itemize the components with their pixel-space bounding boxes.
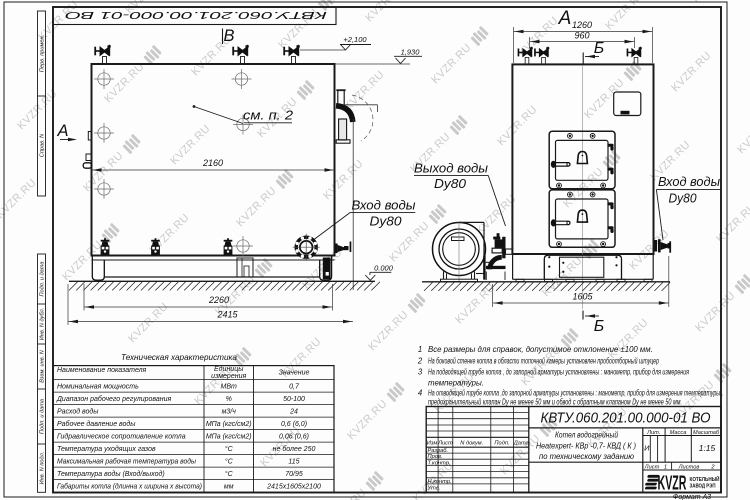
svg-text:Рабочее давление воды: Рабочее давление воды	[57, 420, 136, 428]
svg-text:измерения: измерения	[211, 373, 246, 380]
svg-text:КВТУ.060.201.00.000-01 ВО: КВТУ.060.201.00.000-01 ВО	[65, 9, 327, 21]
svg-text:МПа (кгс/см2): МПа (кгс/см2)	[206, 421, 252, 428]
svg-text:70/95: 70/95	[285, 471, 303, 478]
svg-text:2: 2	[417, 356, 423, 365]
svg-text:2415х1605х2100: 2415х1605х2100	[266, 484, 321, 491]
svg-text:м3/ч: м3/ч	[222, 409, 237, 416]
svg-text:Котел водогрейный: Котел водогрейный	[555, 430, 618, 440]
svg-text:Диапазон рабочего регулировани: Диапазон рабочего регулирования	[56, 395, 172, 403]
svg-text:Вход воды: Вход воды	[658, 174, 720, 189]
svg-text:1:15: 1:15	[699, 443, 716, 453]
svg-text:Листов: Листов	[678, 465, 700, 471]
svg-text:Лист: Лист	[437, 441, 453, 447]
svg-text:Б: Б	[594, 40, 604, 57]
svg-text:°С: °С	[225, 445, 234, 453]
svg-text:0,06 (0,6): 0,06 (0,6)	[279, 434, 309, 441]
svg-text:4: 4	[418, 389, 423, 398]
svg-text:Подп.: Подп.	[494, 441, 509, 447]
svg-text:Инв. N дубл.: Инв. N дубл.	[39, 308, 45, 340]
svg-text:2260: 2260	[208, 295, 229, 305]
svg-text:2415: 2415	[216, 310, 238, 320]
svg-text:Перв. примен.: Перв. примен.	[39, 35, 45, 72]
svg-text:1260: 1260	[572, 20, 592, 30]
svg-text:Наименование показателя: Наименование показателя	[57, 367, 147, 374]
svg-text:по техническому заданию: по техническому заданию	[539, 451, 634, 461]
svg-text:Dy80: Dy80	[370, 214, 403, 229]
svg-text:°С: °С	[225, 470, 234, 478]
svg-text:Габариты котла (длинна х ширин: Габариты котла (длинна х ширина х высота…	[57, 483, 202, 491]
svg-text:2160: 2160	[202, 158, 223, 168]
svg-text:Heatexpert- КВр -0,7- КВД ( К: Heatexpert- КВр -0,7- КВД ( К )	[536, 441, 636, 451]
svg-text:+2,100: +2,100	[343, 35, 367, 44]
svg-text:На подводящей трубе котла , д: На подводящей трубе котла , до запорной …	[428, 368, 690, 377]
svg-text:мм: мм	[224, 484, 234, 491]
svg-text:КОТЕЛЬНЫЙ: КОТЕЛЬНЫЙ	[690, 475, 720, 483]
svg-text:Б: Б	[594, 318, 604, 335]
svg-text:Гидравлическое сопротивление к: Гидравлическое сопротивление котла	[57, 433, 186, 441]
svg-text:Формат А3: Формат А3	[673, 494, 711, 500]
svg-text:1: 1	[664, 465, 667, 471]
svg-text:Лист: Лист	[644, 465, 660, 471]
svg-text:Максимальная рабочая температу: Максимальная рабочая температура воды	[57, 458, 197, 466]
svg-text:ЗАВОД РЭП: ЗАВОД РЭП	[690, 484, 716, 490]
svg-text:Н.контр.: Н.контр.	[428, 479, 452, 485]
svg-text:температуры.: температуры.	[428, 379, 484, 388]
svg-text:Масса: Масса	[670, 430, 687, 436]
svg-text:Изм: Изм	[427, 441, 438, 447]
svg-text:N докум.: N докум.	[460, 441, 483, 447]
svg-text:%: %	[226, 396, 232, 403]
svg-text:0,7: 0,7	[289, 384, 300, 391]
svg-text:В: В	[223, 27, 234, 45]
svg-text:°С: °С	[225, 458, 234, 466]
svg-text:На отводящей трубе котла ,до з: На отводящей трубе котла ,до запорной ар…	[428, 389, 723, 398]
svg-text:1: 1	[418, 345, 422, 354]
svg-text:И: И	[644, 444, 650, 453]
svg-text:Масштаб: Масштаб	[693, 430, 720, 436]
svg-text:Выход воды: Выход воды	[414, 161, 488, 176]
svg-text:МВт: МВт	[221, 384, 238, 391]
svg-text:Дата: Дата	[513, 441, 529, 447]
svg-text:3: 3	[418, 368, 423, 377]
svg-text:Dy80: Dy80	[434, 176, 467, 191]
svg-text:Номинальная мощность: Номинальная мощность	[57, 384, 139, 391]
svg-text:Вход воды: Вход воды	[352, 198, 416, 213]
svg-text:Подп. и дата: Подп. и дата	[39, 399, 45, 434]
svg-text:Т.контр.: Т.контр.	[428, 461, 451, 467]
svg-text:0.000: 0.000	[374, 264, 394, 273]
svg-text:24: 24	[289, 409, 298, 416]
svg-text:Dy80: Dy80	[669, 191, 698, 206]
svg-text:Температура уходящих газов: Температура уходящих газов	[57, 445, 156, 453]
svg-text:Справ. N: Справ. N	[39, 133, 45, 157]
svg-text:Пров.: Пров.	[428, 454, 443, 460]
svg-text:Лит.: Лит.	[646, 430, 660, 436]
svg-text:А: А	[558, 8, 572, 29]
svg-text:МПа (кгс/см2): МПа (кгс/см2)	[206, 434, 252, 441]
svg-text:см. п. 2: см. п. 2	[243, 109, 293, 123]
svg-text:Утв.: Утв.	[427, 486, 441, 492]
svg-text:115: 115	[288, 459, 299, 466]
svg-text:Значение: Значение	[279, 370, 310, 377]
svg-text:Все размеры для справок, допус: Все размеры для справок, допустимое откл…	[428, 345, 653, 354]
svg-text:Подп. и дата: Подп. и дата	[39, 261, 45, 296]
svg-text:Инв. N подл.: Инв. N подл.	[39, 452, 45, 485]
svg-text:Расход воды: Расход воды	[57, 408, 99, 416]
svg-text:960: 960	[574, 31, 589, 41]
svg-text:На боковой стенке котла в обла: На боковой стенке котла в области топочн…	[428, 356, 659, 365]
svg-text:50-100: 50-100	[283, 396, 305, 403]
svg-text:Температура воды (Вход/выход): Температура воды (Вход/выход)	[57, 470, 165, 478]
svg-text:предохранительный клапан Dу н: предохранительный клапан Dу не менее 50 …	[428, 398, 682, 407]
svg-text:А: А	[56, 122, 68, 140]
svg-text:KVZR: KVZR	[658, 472, 687, 494]
svg-text:Техническая характеристика: Техническая характеристика	[121, 353, 237, 362]
svg-text:Взам. инв. N: Взам. инв. N	[39, 349, 45, 383]
svg-text:1,930: 1,930	[401, 48, 421, 57]
svg-text:1605: 1605	[572, 292, 593, 302]
svg-text:Единицы: Единицы	[214, 365, 244, 373]
svg-text:КВТУ.060.201.00.000-01 ВО: КВТУ.060.201.00.000-01 ВО	[541, 411, 711, 427]
svg-text:0,6 (6,0): 0,6 (6,0)	[281, 421, 307, 428]
svg-text:не более 250: не более 250	[273, 445, 316, 453]
